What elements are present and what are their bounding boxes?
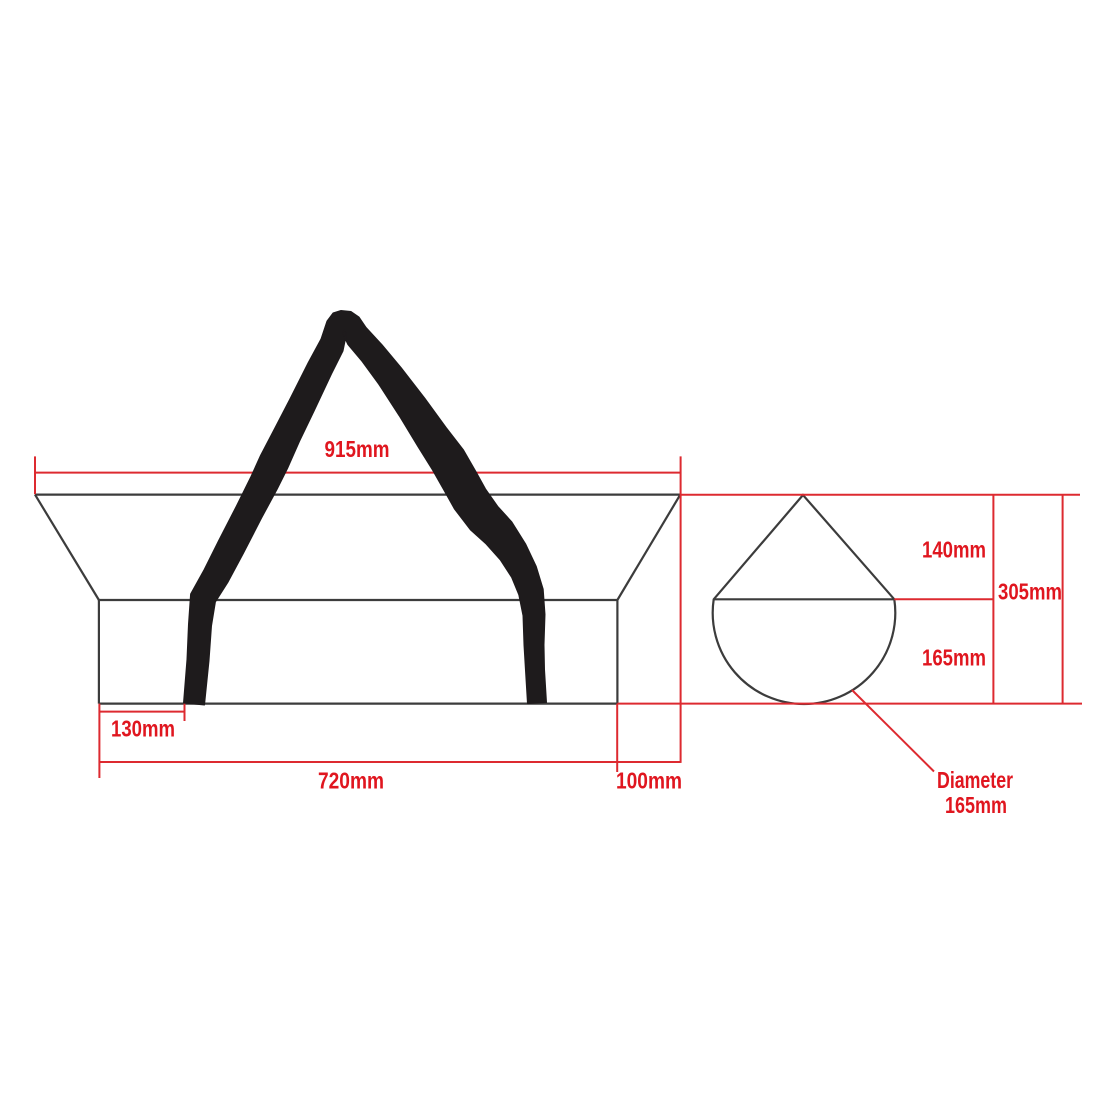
svg-text:720mm: 720mm [318,768,384,794]
svg-text:140mm: 140mm [922,537,986,563]
svg-text:130mm: 130mm [111,716,175,742]
svg-text:100mm: 100mm [616,768,682,794]
svg-text:165mm: 165mm [922,645,986,671]
svg-text:Diameter: Diameter [937,767,1013,793]
svg-text:165mm: 165mm [945,792,1007,818]
svg-text:305mm: 305mm [998,579,1062,605]
svg-text:915mm: 915mm [325,436,390,462]
